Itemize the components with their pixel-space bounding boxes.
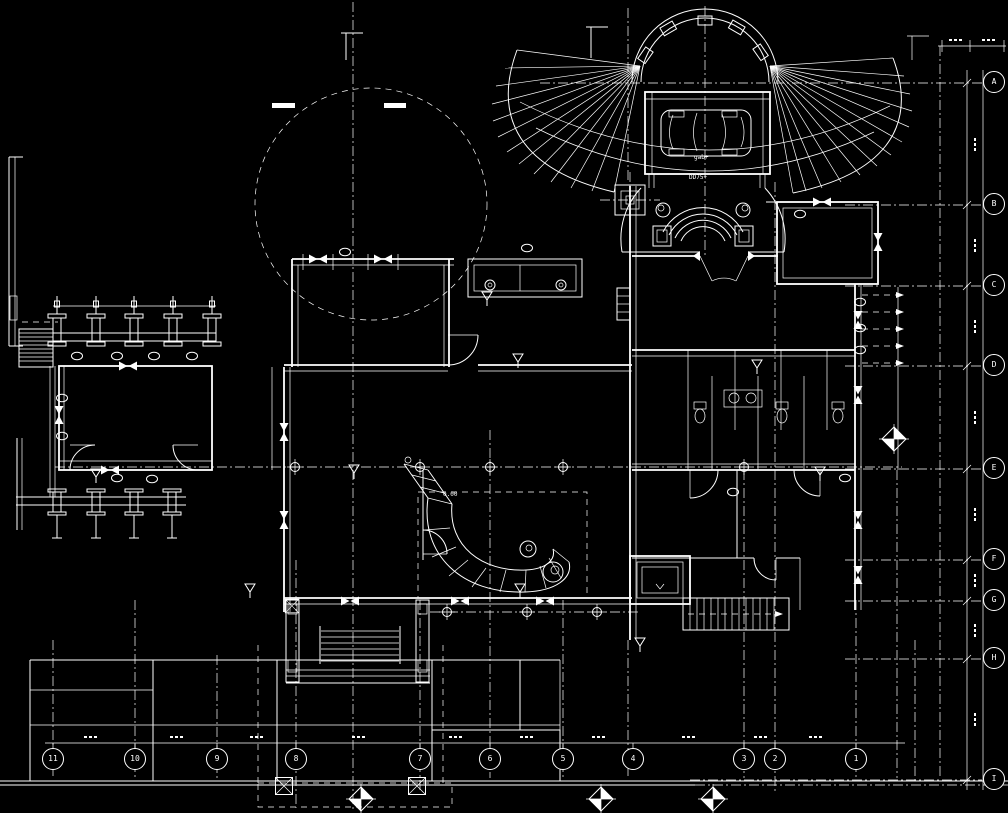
grid-bubble-3: 3	[733, 748, 755, 770]
grid-bubble-G: G	[983, 589, 1005, 611]
level-annotation-garage: gab+	[694, 155, 708, 161]
level-annotation-stair: 0.00	[443, 492, 457, 498]
grid-bubble-A: A	[983, 71, 1005, 93]
grid-bubble-2: 2	[764, 748, 786, 770]
grid-bubble-11: 11	[42, 748, 64, 770]
floor-plan-drawing	[0, 0, 1008, 813]
grid-bubble-4: 4	[622, 748, 644, 770]
left-wing-room	[55, 362, 213, 484]
grid-bubble-B: B	[983, 193, 1005, 215]
ramp-fan-left	[492, 50, 640, 192]
grid-bubble-I: I	[983, 768, 1005, 790]
northwest-room	[292, 248, 454, 367]
grid-bubble-9: 9	[206, 748, 228, 770]
right-dimension-rails	[938, 39, 1006, 790]
top-center-cabinet	[468, 244, 630, 320]
grid-bubble-C: C	[983, 274, 1005, 296]
left-boundary-wall	[9, 157, 23, 346]
north-entry-porch	[600, 172, 785, 281]
grid-bubble-H: H	[983, 647, 1005, 669]
grid-bubble-7: 7	[409, 748, 431, 770]
left-exterior-stair	[19, 322, 58, 367]
grid-bubble-8: 8	[285, 748, 307, 770]
grid-bubble-10: 10	[124, 748, 146, 770]
grid-bubble-5: 5	[552, 748, 574, 770]
grid-bubble-E: E	[983, 457, 1005, 479]
grid-bubble-F: F	[983, 548, 1005, 570]
floor-plan-sheet: 11 10 9 8 7 6 5 4 3 2 1 A B C D E F G H …	[0, 0, 1008, 813]
northeast-room	[777, 198, 883, 285]
east-wing	[630, 284, 904, 630]
grid-bubble-D: D	[983, 354, 1005, 376]
pergola-lower	[16, 366, 186, 538]
grid-bubble-1: 1	[845, 748, 867, 770]
pergola-upper	[48, 296, 221, 360]
top-ticks	[341, 27, 929, 60]
grid-bubble-6: 6	[479, 748, 501, 770]
corridor-wall	[284, 335, 632, 371]
level-annotation-entry: DD75+	[689, 175, 707, 181]
ramp-fan-right	[770, 58, 912, 193]
grand-curved-stair	[404, 457, 587, 598]
